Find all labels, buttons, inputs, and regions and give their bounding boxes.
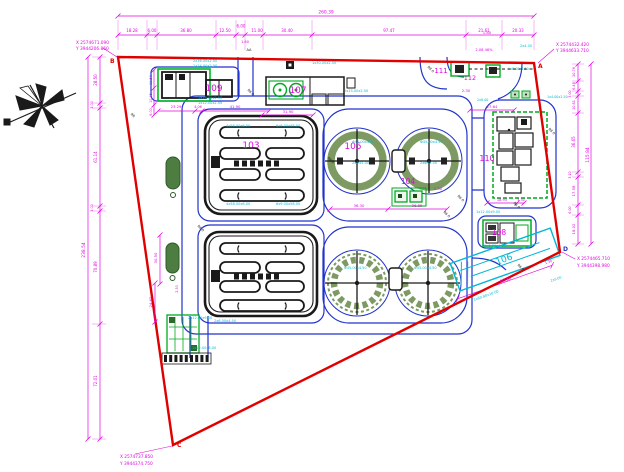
corner-C-y: Y 3944374.750 [119, 461, 153, 467]
building-label-110: 110 [479, 154, 494, 163]
dim-label: 18.02 [571, 223, 576, 234]
dim-label: 18.28 [126, 28, 138, 33]
equipment-tag: 1x24.00x2.50 [193, 64, 217, 68]
corner-B-y: Y 3944206.860 [75, 46, 109, 52]
dim-label: 10.81 [572, 100, 576, 110]
building-label-109: 109 [205, 84, 222, 94]
road-tag: RR [130, 112, 137, 119]
building-label-112: 112 [464, 74, 476, 82]
dim-label: 20.33 [512, 28, 524, 33]
dim-label: 11.00 [251, 28, 263, 33]
dim-label: 12.50 [219, 28, 231, 33]
equipment-tag: 2x8.00 [477, 98, 488, 102]
aeration-basin-south [205, 232, 317, 316]
road-tag: R6.0 [457, 194, 465, 202]
dim-label: 10.45 [149, 93, 153, 103]
dim-label: 238.54 [81, 242, 87, 258]
dim-label: 3.00 [90, 204, 94, 212]
dim-label: 18.95 [497, 198, 507, 202]
road-tag: R6.0 [443, 210, 451, 218]
building-label-108: 108 [492, 228, 507, 237]
dim-label: 1.60 [241, 40, 250, 44]
dim-label: 41.90 [230, 104, 241, 109]
equipment-tag: 4x58.00x6.00 [226, 202, 250, 206]
dim-label: 3.00 [568, 90, 572, 97]
corner-A-x: X 2574432.420 [556, 42, 589, 48]
dim-label: 4.06 [194, 105, 202, 109]
equipment-tag: 2xΦ45.00 [352, 161, 369, 165]
building-label-111: 111 [434, 67, 447, 75]
dim-label: 3.10 [568, 171, 572, 178]
building-label-104: 104 [401, 177, 416, 186]
dim-label: 27.64 [487, 104, 498, 109]
dim-label: 23.29 [171, 104, 182, 109]
building-label-106: 106 [495, 252, 515, 267]
equipment-tag: Φ45.00x4.50 [352, 140, 375, 144]
site-plan-canvas: 109107103105104110111112108106260.3918.2… [0, 0, 624, 472]
dim-label: 24.65 [148, 296, 153, 307]
equipment-tag: 1x60.80x10.00 [473, 289, 499, 302]
dim-label: 36.30 [354, 203, 365, 208]
storage-tank-south [166, 243, 179, 281]
dim-label: 260.39 [318, 10, 334, 16]
dim-label: 10.76 [572, 67, 576, 77]
dim-label: 36.85 [412, 203, 423, 208]
gate-post-marker [286, 61, 294, 69]
dim-label: 11.50 [149, 75, 153, 85]
dim-label: 36.80 [180, 28, 192, 33]
dim-label: 1.80 [483, 30, 492, 35]
dim-label: 31.90 [283, 109, 294, 114]
dim-label: 72.01 [93, 375, 98, 387]
dim-label: 28.50 [93, 74, 98, 86]
building-110 [493, 112, 547, 198]
corner-B-x: X 2574671.090 [76, 40, 109, 46]
equipment-tag: Φ45.00x4.50 [344, 266, 367, 270]
equipment-tag: Φ45.00x4.50 [420, 140, 443, 144]
dim-label: 6.00 [148, 28, 157, 33]
corner-C-x: X 2574737.850 [120, 454, 153, 460]
road-tag: R8.0 [548, 127, 556, 135]
equipment-tag: 1x12.00x6.00 [192, 346, 216, 350]
equipment-tag: 2x36.00x2.50 [193, 59, 217, 63]
corner-letter-D: D [563, 246, 568, 253]
dim-label: 4.30 [517, 198, 524, 202]
road-tag: R6.0 [197, 224, 205, 232]
pump-station [162, 315, 211, 364]
door-markers [511, 91, 530, 98]
corner-D-y: Y 3944398.980 [576, 263, 610, 269]
building-label-103: 103 [242, 141, 259, 151]
dim-label: 6.48 [572, 82, 576, 90]
equipment-tag: 2xΦ45.00 [420, 161, 437, 165]
clarifier-junction-box [392, 150, 405, 172]
dim-label: 6.00 [149, 108, 153, 116]
site-plan: 109107103105104110111112108106260.3918.2… [0, 0, 624, 472]
corner-letter-A: A [538, 63, 543, 70]
equipment-tag: 1x30.00x2.50 [312, 61, 336, 65]
dim-label: 17.58 [571, 185, 576, 196]
corner-A-y: Y 3944633.710 [555, 48, 589, 54]
corner-D-x: X 2574465.710 [577, 256, 610, 262]
road-tag: R6.0 [247, 88, 255, 96]
building-label-107: 107 [289, 86, 306, 96]
dim-label: 115.84 [585, 147, 591, 163]
clarifier-junction-box-south [389, 268, 402, 290]
equipment-tag: 1x6.00x4.50 [508, 67, 529, 71]
equipment-tag: 2x15.00x2.50 [344, 89, 368, 93]
equipment-tag: 1x4.00x2.50 [547, 95, 568, 99]
equipment-tag: 2x6.00x4.50 [484, 244, 506, 248]
road-tag: AA [246, 48, 252, 52]
storage-tank-north [166, 157, 180, 198]
dim-label: 6.00 [568, 206, 572, 213]
equipment-tag: 2x4.00 [520, 44, 532, 48]
corner-letter-C: C [177, 442, 182, 449]
equipment-tag: 2x12.00x9.00 [188, 316, 212, 320]
equipment-tag: 1x12.00x2.50 [198, 101, 222, 105]
clarifier-south-west [324, 250, 390, 316]
dim-label: 30.40 [281, 28, 293, 33]
equipment-tag: Φ45.00x4.50 [414, 266, 437, 270]
north-arrow-icon [4, 84, 76, 128]
dim-label: 2.50 [175, 285, 179, 293]
building-107 [266, 77, 355, 105]
equipment-tag: 4x58.00x6.00 [226, 124, 250, 128]
dim-label: 97.47 [383, 28, 395, 33]
dim-label: 30.50 [153, 252, 158, 263]
equipment-tag: 2x18.00x2.50 [198, 96, 222, 100]
equipment-tag: 6x9.00x58.00 [276, 124, 300, 128]
equipment-tag: 2x6.00x4.50 [214, 319, 236, 323]
dim-label: 2.30 [462, 88, 471, 93]
equipment-tag: 6x9.00x58.00 [276, 202, 300, 206]
dim-label: 36.65 [571, 136, 576, 148]
equipment-tag: 2x6.00 [550, 275, 562, 283]
dim-label: 70.89 [93, 261, 98, 273]
dim-label: 2.08 46% [475, 48, 493, 52]
dim-label: 3.00 [90, 101, 94, 109]
equipment-tag: 1x12.00x9.00 [476, 210, 500, 214]
building-108 [483, 220, 531, 246]
corner-letter-B: B [110, 58, 115, 65]
dim-label: 2.30 [434, 186, 443, 191]
dim-label: 61.14 [93, 151, 98, 163]
dim-label: 6.00 [237, 24, 246, 29]
aeration-basin-103 [205, 116, 317, 214]
